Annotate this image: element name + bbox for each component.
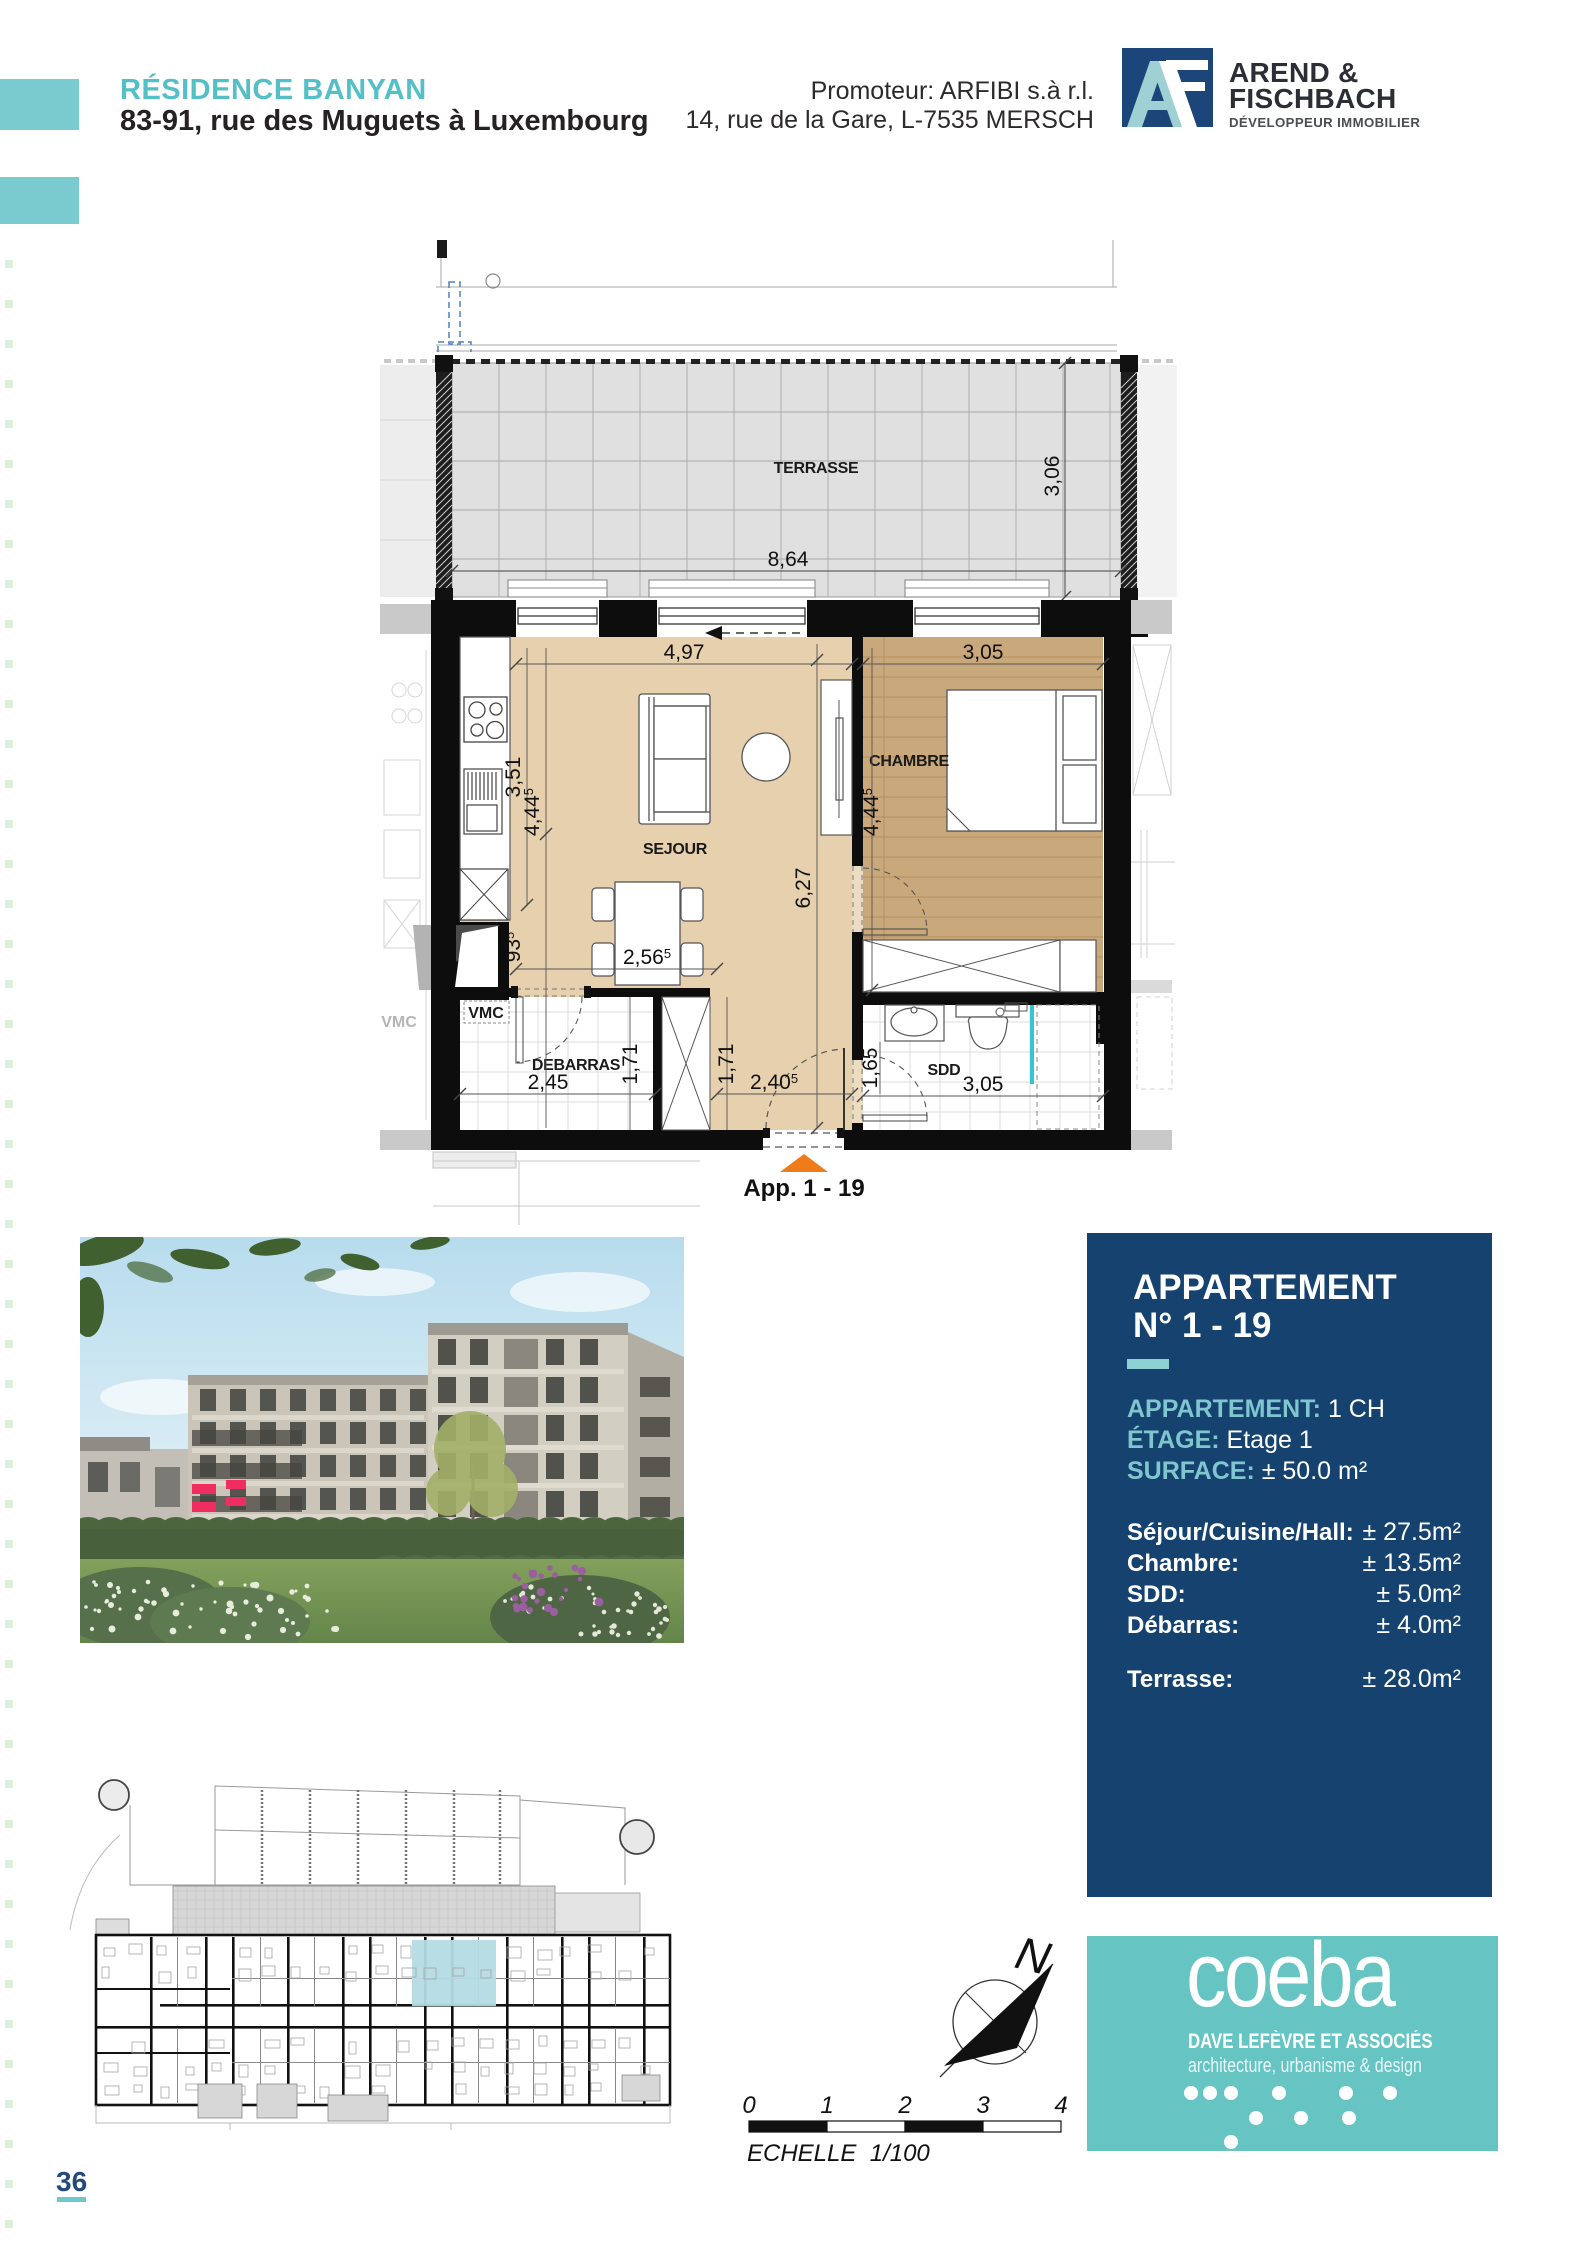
svg-text:1: 1 xyxy=(820,2092,833,2119)
svg-text:VMC: VMC xyxy=(381,1014,417,1031)
svg-text:3,05: 3,05 xyxy=(963,1073,1004,1096)
svg-text:1,71: 1,71 xyxy=(715,1044,738,1085)
svg-text:N: N xyxy=(1011,1926,1057,1985)
svg-text:ECHELLE 1/100: ECHELLE 1/100 xyxy=(747,2140,930,2167)
svg-text:2: 2 xyxy=(897,2092,911,2119)
svg-text:CHAMBRE: CHAMBRE xyxy=(869,753,949,770)
svg-text:3,05: 3,05 xyxy=(963,641,1004,664)
svg-text:VMC: VMC xyxy=(468,1005,504,1022)
svg-text:6,27: 6,27 xyxy=(792,868,815,909)
svg-text:FISCHBACH: FISCHBACH xyxy=(1229,83,1397,114)
svg-text:2,45: 2,45 xyxy=(528,1071,569,1094)
svg-text:TERRASSE: TERRASSE xyxy=(774,460,859,477)
svg-text:3,06: 3,06 xyxy=(1041,456,1064,497)
svg-text:1,71: 1,71 xyxy=(619,1044,642,1085)
svg-text:1,65: 1,65 xyxy=(859,1048,882,1089)
svg-text:4: 4 xyxy=(1054,2092,1067,2119)
svg-text:DÉVELOPPEUR IMMOBILIER: DÉVELOPPEUR IMMOBILIER xyxy=(1229,115,1420,130)
svg-text:3: 3 xyxy=(976,2092,990,2119)
svg-text:4,97: 4,97 xyxy=(664,641,705,664)
svg-text:SEJOUR: SEJOUR xyxy=(643,841,708,858)
svg-text:SDD: SDD xyxy=(928,1062,961,1079)
svg-text:App. 1 - 19: App. 1 - 19 xyxy=(743,1175,864,1202)
svg-text:8,64: 8,64 xyxy=(768,548,809,571)
svg-text:0: 0 xyxy=(742,2092,756,2119)
